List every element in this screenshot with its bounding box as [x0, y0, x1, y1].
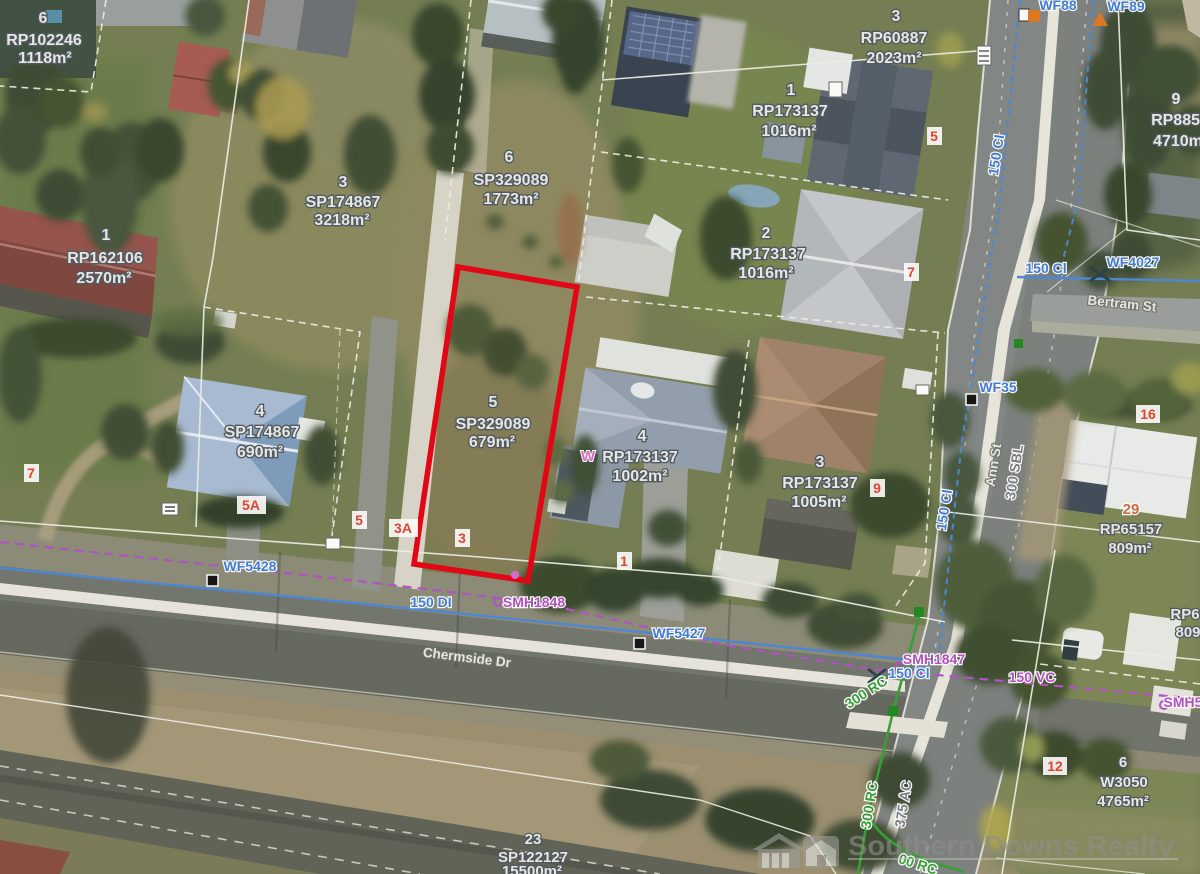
svg-text:Southern Downs Realty: Southern Downs Realty	[848, 830, 1174, 861]
